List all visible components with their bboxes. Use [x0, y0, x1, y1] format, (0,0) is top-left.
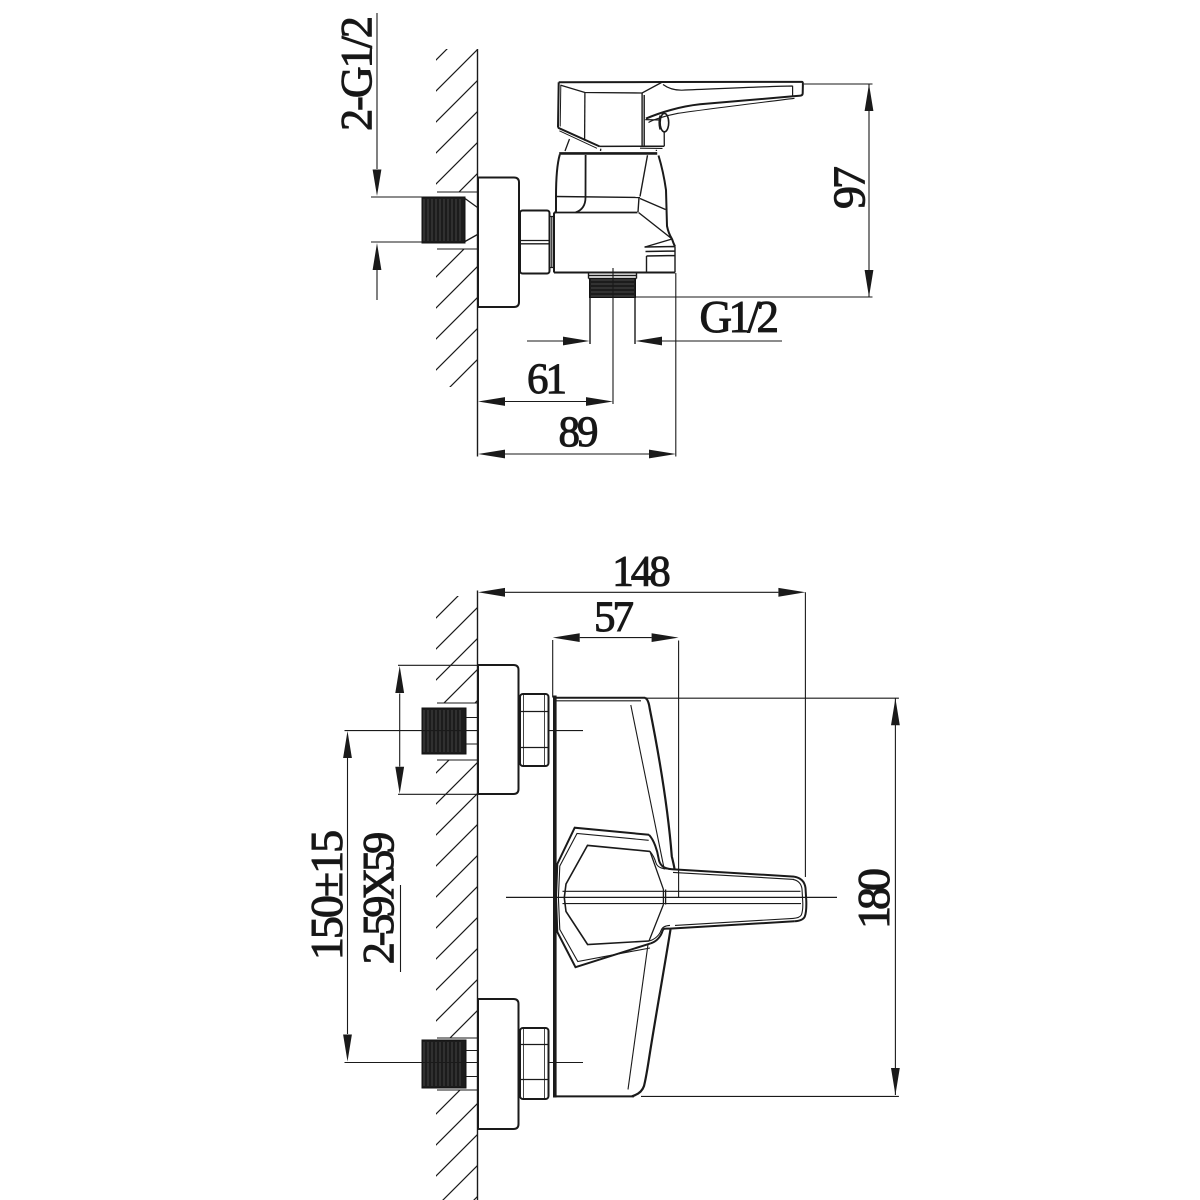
svg-text:150±15: 150±15	[301, 831, 352, 960]
svg-text:61: 61	[527, 356, 565, 403]
svg-text:2-G1/2: 2-G1/2	[332, 18, 381, 131]
svg-text:89: 89	[559, 409, 598, 456]
svg-text:97: 97	[824, 167, 875, 209]
svg-text:57: 57	[594, 594, 634, 641]
svg-text:G1/2: G1/2	[700, 292, 778, 342]
svg-text:148: 148	[612, 548, 669, 595]
svg-text:180: 180	[848, 869, 899, 929]
svg-text:2-59X59: 2-59X59	[354, 833, 403, 964]
